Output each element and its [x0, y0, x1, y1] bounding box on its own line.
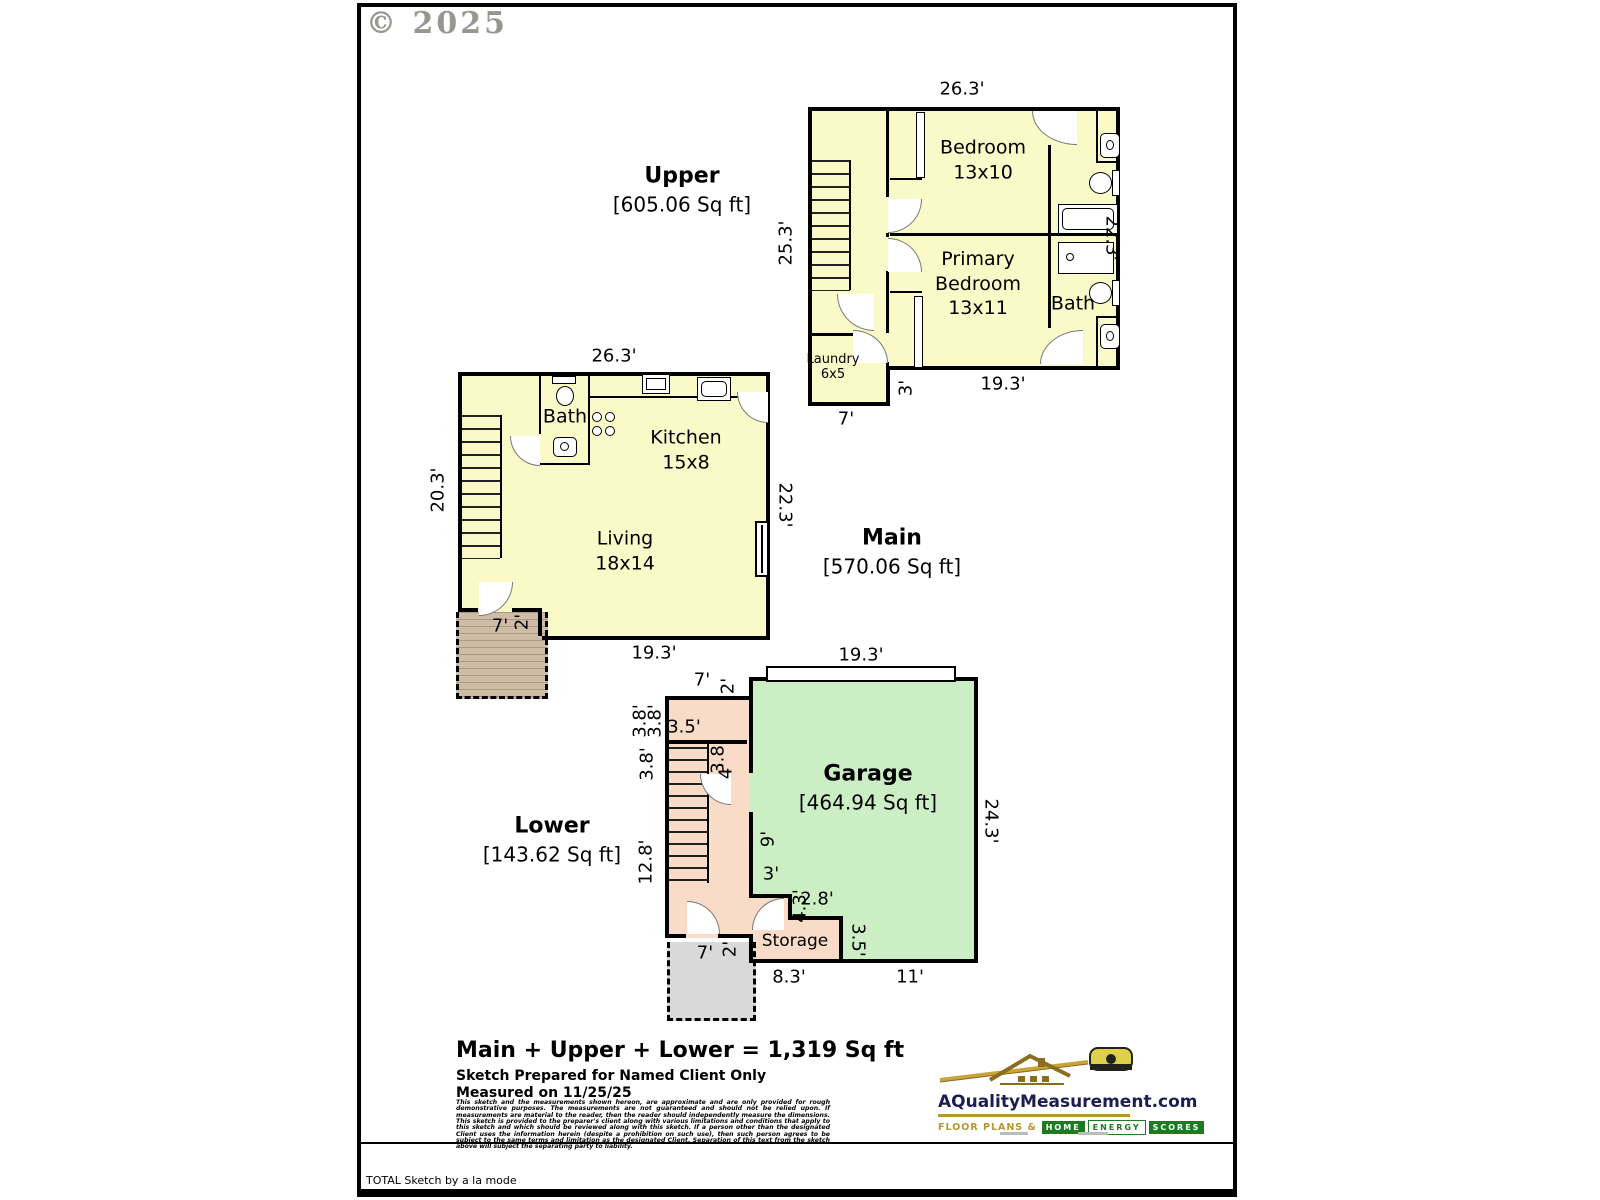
wall	[886, 366, 890, 406]
lower-dim-11: 11'	[896, 967, 924, 988]
wall	[808, 333, 858, 336]
primary-name-2: Bedroom	[935, 272, 1021, 297]
lower-dim-3: 3'	[763, 864, 779, 885]
sink-basin	[1106, 331, 1114, 341]
living-size: 18x14	[595, 551, 655, 576]
page-border-bottom	[357, 1189, 1237, 1197]
bedroom-name: Bedroom	[940, 135, 1026, 160]
prepared-for-line: Sketch Prepared for Named Client Only	[456, 1068, 766, 1084]
lower-stairs	[669, 747, 707, 883]
living-name: Living	[595, 526, 655, 551]
lower-dim-128: 12.8'	[636, 839, 657, 884]
range-burner	[605, 412, 615, 422]
lower-dim-stair4: 4'	[716, 763, 737, 779]
logo-rule	[938, 1114, 1130, 1117]
wall	[462, 608, 478, 612]
toilet-tank	[552, 376, 576, 384]
wall	[886, 271, 889, 333]
living-window-pane	[761, 525, 763, 573]
lower-dim-83: 8.3'	[772, 967, 806, 988]
sink-basin	[560, 442, 569, 451]
sink-basin	[1106, 140, 1114, 150]
garage-area: [464.94 Sq ft]	[799, 789, 937, 815]
toilet-bowl	[1089, 172, 1112, 194]
lower-dim-top-d: 2'	[718, 678, 739, 694]
living-label: Living 18x14	[595, 526, 655, 575]
tape-measure-house-icon	[938, 1046, 1138, 1090]
wall	[1096, 316, 1120, 318]
upper-dim-right: 22.3'	[1102, 215, 1123, 260]
wall	[1096, 161, 1120, 163]
primary-bedroom-label: Primary Bedroom 13x11	[935, 247, 1021, 321]
range-burner	[592, 426, 602, 436]
oven-inner	[646, 378, 666, 390]
main-bath-label: Bath	[543, 405, 587, 430]
wall	[665, 696, 753, 700]
lower-dim-9: 9'	[758, 831, 779, 847]
wall	[542, 636, 770, 640]
wall	[1096, 107, 1098, 163]
lower-dim-38b: 3.8'	[645, 704, 666, 738]
main-dim-bottom: 19.3'	[631, 643, 676, 664]
closet-wall	[890, 178, 922, 180]
floorplan-sheet: © 2025 26.3' 25.3' 22.3' 19.3' 3'	[0, 0, 1600, 1200]
lower-title: Lower [143.62 Sq ft]	[483, 813, 621, 868]
upper-dim-laundry: 7'	[838, 409, 854, 430]
copyright-text: © 2025	[366, 6, 508, 41]
logo-domain: AQualityMeasurement.com	[938, 1092, 1138, 1112]
garage-name: Garage	[799, 761, 937, 790]
closet-wall	[890, 291, 922, 293]
shower-drain	[1066, 253, 1074, 261]
wall	[808, 402, 890, 406]
main-title-text: Main	[823, 525, 961, 554]
upper-area-text: [605.06 Sq ft]	[613, 191, 751, 217]
lower-area-text: [143.62 Sq ft]	[483, 841, 621, 867]
upper-stairs	[812, 160, 850, 291]
lower-dim-43: 4.3'	[790, 889, 811, 923]
bath-wall	[539, 372, 541, 434]
wall	[886, 362, 889, 370]
wall	[886, 233, 889, 237]
toilet-bowl	[556, 386, 574, 406]
wall	[665, 934, 686, 938]
garage-door	[766, 666, 956, 682]
upper-dim-step: 3'	[896, 380, 917, 396]
upper-title: Upper [605.06 Sq ft]	[613, 163, 751, 218]
deck-dim-w: 7'	[492, 616, 508, 637]
kitchen-name: Kitchen	[650, 425, 721, 450]
bath-wall	[588, 372, 590, 465]
laundry-name: Laundry	[807, 353, 860, 368]
wall	[749, 934, 753, 963]
stair-rail	[500, 415, 502, 558]
wall	[974, 677, 978, 963]
logo-tagline: FLOOR PLANS & HOME ENERGY SCORES	[938, 1120, 1138, 1135]
company-logo: AQualityMeasurement.com FLOOR PLANS & HO…	[938, 1046, 1138, 1135]
wall	[749, 677, 753, 773]
main-stairs	[462, 415, 500, 559]
garage-dim-right: 24.3'	[981, 798, 1002, 843]
main-title: Main [570.06 Sq ft]	[823, 525, 961, 580]
lower-title-text: Lower	[483, 813, 621, 842]
main-dim-right: 22.3'	[775, 482, 796, 527]
logo-word-scores: SCORES	[1149, 1121, 1205, 1134]
lower-dim-38c: 3.8'	[637, 747, 658, 781]
total-area-line: Main + Upper + Lower = 1,319 Sq ft	[456, 1038, 904, 1063]
upper-title-text: Upper	[613, 163, 751, 192]
garage-label: Garage [464.94 Sq ft]	[799, 761, 937, 816]
wall	[458, 372, 770, 376]
garage-dim-top: 19.3'	[838, 645, 883, 666]
logo-subbar	[1000, 1132, 1028, 1135]
primary-name-1: Primary	[935, 247, 1021, 272]
deck-dim-d: 2'	[512, 614, 533, 630]
main-area-text: [570.06 Sq ft]	[823, 553, 961, 579]
wall	[1048, 145, 1051, 233]
primary-size: 13x11	[935, 296, 1021, 321]
patio-dim-d: 2'	[720, 941, 741, 957]
upper-dim-top: 26.3'	[939, 79, 984, 100]
bath-wall	[539, 463, 590, 465]
toilet-tank	[1112, 170, 1120, 196]
wall	[749, 894, 792, 898]
wall	[839, 916, 843, 963]
wall	[749, 812, 753, 898]
main-dim-top: 26.3'	[591, 346, 636, 367]
bedroom-size: 13x10	[940, 160, 1026, 185]
wall	[538, 608, 542, 636]
kitchen-size: 15x8	[650, 450, 721, 475]
storage-label: Storage	[762, 930, 829, 952]
lower-dim-top-w: 7'	[694, 670, 710, 691]
upper-dim-left: 25.3'	[776, 220, 797, 265]
bedroom-label: Bedroom 13x10	[940, 135, 1026, 184]
footer-note: TOTAL Sketch by a la mode	[366, 1174, 517, 1187]
kitchen-sink-basin	[701, 381, 727, 397]
closet-slider-door	[914, 296, 923, 368]
lower-dim-35: 3.5'	[667, 717, 701, 738]
upper-dim-bottom: 19.3'	[980, 374, 1025, 395]
closet-slider-door	[916, 112, 925, 178]
wall	[886, 111, 889, 197]
disclaimer-text: This sketch and the measurements shown h…	[456, 1100, 830, 1151]
kitchen-label: Kitchen 15x8	[650, 425, 721, 474]
upper-bath-label: Bath	[1051, 292, 1095, 317]
wall	[890, 366, 1120, 370]
wall	[1096, 316, 1098, 370]
range-burner	[592, 412, 602, 422]
wall	[718, 934, 753, 938]
storage-dim-h: 3.5'	[848, 923, 869, 957]
range-burner	[605, 426, 615, 436]
wall	[749, 959, 978, 963]
patio-dim-w: 7'	[697, 943, 713, 964]
main-dim-left: 20.3'	[428, 467, 449, 512]
laundry-label: Laundry 6x5	[807, 353, 860, 383]
laundry-size: 6x5	[807, 368, 860, 383]
toilet-tank	[1112, 280, 1120, 306]
logo-subbar	[1078, 1132, 1108, 1135]
